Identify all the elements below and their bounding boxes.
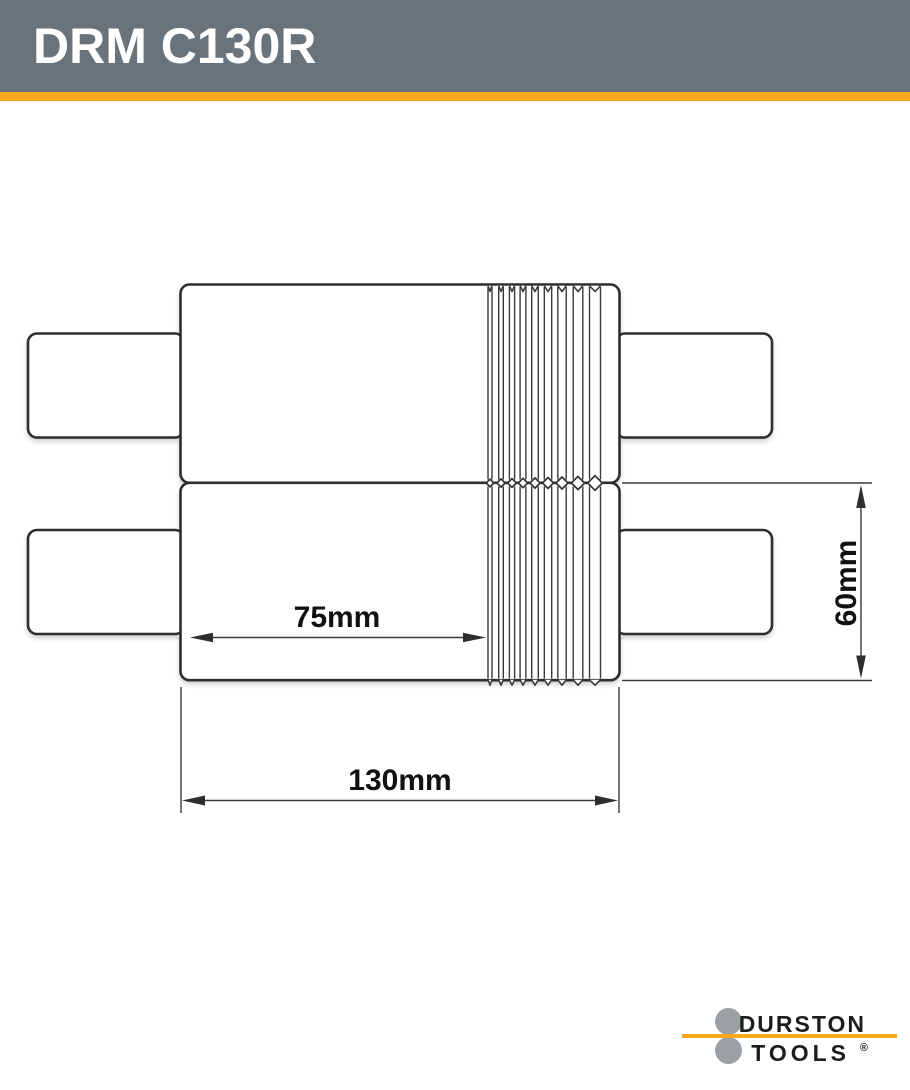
durston-tools-logo: DURSTON TOOLS ® <box>680 1000 910 1078</box>
groove-bottom-bump <box>590 680 601 685</box>
groove-bottom-bump <box>558 680 566 685</box>
dim-label-130mm: 130mm <box>348 764 451 797</box>
bottom-left-shaft <box>28 530 184 634</box>
top-left-shaft <box>28 334 184 438</box>
dim-label-75mm: 75mm <box>294 601 381 634</box>
groove-bottom-bump <box>520 680 526 685</box>
groove-bottom-bump <box>532 680 539 685</box>
top-roller-body <box>181 285 620 483</box>
groove-bottom-bump <box>509 680 514 685</box>
roller-dimension-diagram: 75mm 130mm 60mm <box>0 0 910 1090</box>
groove-bottom-bump <box>499 680 504 685</box>
groove-bottom-bump <box>544 680 551 685</box>
dim-label-60mm: 60mm <box>830 540 863 627</box>
dimension-130mm: 130mm <box>181 687 619 813</box>
groove-bottom-bump <box>488 680 492 685</box>
bottom-roller-body <box>181 483 620 680</box>
registered-trademark-icon: ® <box>860 1042 868 1054</box>
logo-brand-line2: TOOLS <box>680 1040 850 1067</box>
title-bar: DRM C130R <box>0 0 910 92</box>
top-right-shaft <box>616 334 772 438</box>
logo-brand-line1: DURSTON <box>680 1011 866 1038</box>
groove-bottom-bump <box>573 680 583 685</box>
bottom-right-shaft <box>616 530 772 634</box>
accent-stripe <box>0 92 910 101</box>
page-title: DRM C130R <box>0 21 316 71</box>
